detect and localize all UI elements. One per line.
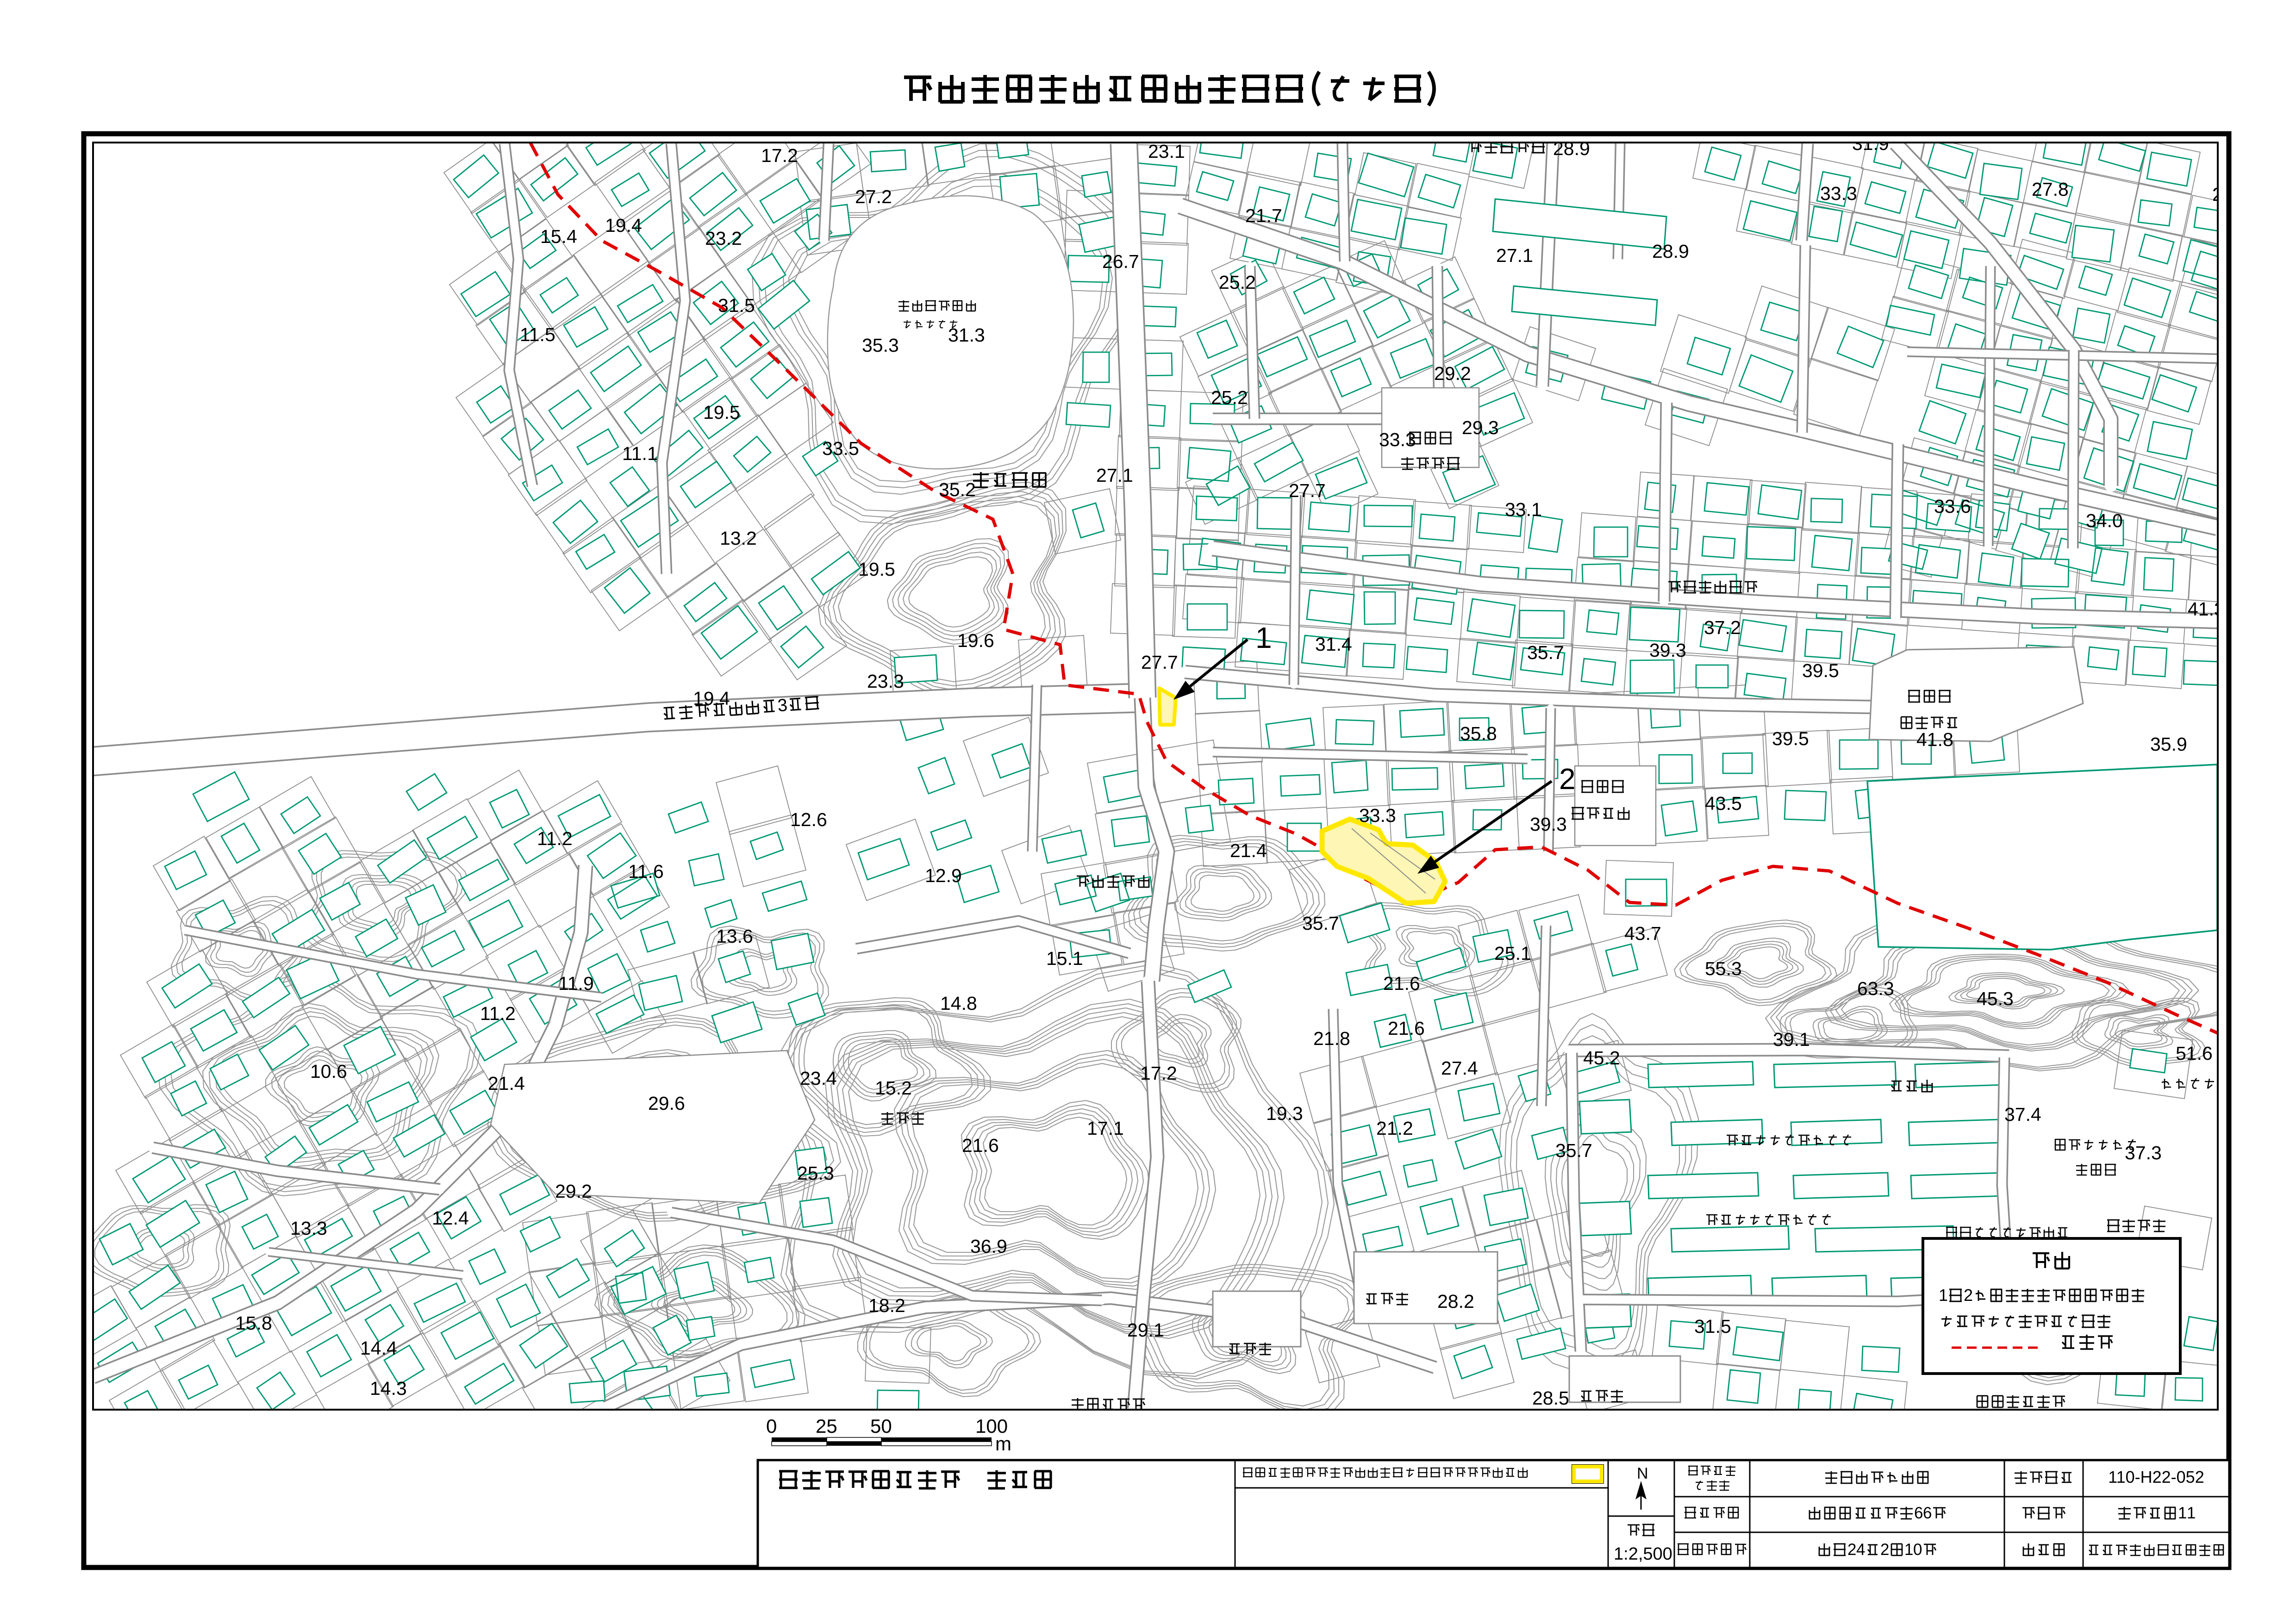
svg-text:10.6: 10.6: [310, 1061, 347, 1082]
svg-text:29.2: 29.2: [555, 1181, 592, 1202]
svg-text:29.2: 29.2: [1434, 363, 1471, 384]
svg-text:27.2: 27.2: [855, 186, 892, 207]
svg-text:15.4: 15.4: [540, 226, 577, 247]
svg-text:21.6: 21.6: [1388, 1018, 1425, 1039]
svg-text:25.1: 25.1: [1494, 943, 1531, 964]
svg-text:55.3: 55.3: [1705, 958, 1742, 979]
svg-text:34.0: 34.0: [2086, 510, 2123, 531]
svg-text:35.3: 35.3: [862, 335, 899, 356]
svg-text:33.3: 33.3: [1379, 429, 1416, 450]
svg-text:43.7: 43.7: [1624, 923, 1661, 944]
svg-text:33.6: 33.6: [1934, 496, 1971, 517]
svg-text:11.6: 11.6: [628, 861, 664, 882]
svg-text:m: m: [995, 1433, 1011, 1455]
svg-text:19.5: 19.5: [703, 402, 740, 423]
svg-text:35.8: 35.8: [1460, 723, 1497, 744]
svg-text:28.9: 28.9: [1652, 241, 1689, 262]
svg-text:21.4: 21.4: [1230, 840, 1267, 861]
svg-text:31.3: 31.3: [948, 324, 985, 346]
svg-text:39.5: 39.5: [1772, 728, 1809, 749]
svg-text:29.6: 29.6: [648, 1093, 685, 1114]
svg-text:27.7: 27.7: [1289, 480, 1326, 501]
svg-text:39.5: 39.5: [1802, 660, 1839, 681]
svg-text:14.3: 14.3: [370, 1378, 407, 1399]
svg-text:25.3: 25.3: [797, 1163, 834, 1184]
svg-text:37.3: 37.3: [2125, 1142, 2162, 1163]
svg-text:19.4: 19.4: [605, 215, 642, 236]
svg-text:11.9: 11.9: [558, 973, 594, 994]
svg-text:35.2: 35.2: [939, 479, 976, 500]
svg-text:29.3: 29.3: [1462, 417, 1499, 438]
svg-text:15.1: 15.1: [1046, 948, 1083, 969]
svg-text:23.2: 23.2: [705, 228, 742, 249]
svg-text:6: 6: [1923, 1504, 1932, 1522]
svg-text:25.2: 25.2: [1211, 387, 1248, 408]
svg-text:25: 25: [816, 1415, 837, 1437]
svg-text:45.3: 45.3: [1977, 988, 2014, 1009]
svg-text:2: 2: [1880, 1541, 1889, 1559]
svg-text:23.4: 23.4: [800, 1068, 837, 1089]
svg-text:12.9: 12.9: [925, 865, 962, 886]
svg-text:39.1: 39.1: [1773, 1029, 1810, 1050]
svg-text:21.7: 21.7: [1245, 205, 1282, 226]
svg-text:37.2: 37.2: [1704, 617, 1741, 638]
svg-text:13.2: 13.2: [720, 528, 757, 549]
svg-text:11.2: 11.2: [480, 1003, 516, 1024]
svg-text:33.5: 33.5: [822, 438, 859, 459]
svg-text:6: 6: [1914, 1504, 1923, 1522]
svg-text:2: 2: [1847, 1541, 1856, 1559]
svg-text:33.1: 33.1: [1505, 499, 1542, 520]
svg-text:11.2: 11.2: [537, 828, 573, 849]
svg-text:19.6: 19.6: [957, 630, 994, 651]
svg-text:12.6: 12.6: [790, 809, 827, 830]
svg-text:17.2: 17.2: [761, 145, 798, 166]
svg-text:11.5: 11.5: [520, 324, 555, 345]
svg-text:27.4: 27.4: [1441, 1057, 1478, 1079]
svg-text:43.5: 43.5: [1705, 793, 1742, 814]
svg-text:17.1: 17.1: [1087, 1118, 1124, 1139]
svg-text:14.4: 14.4: [360, 1337, 397, 1359]
svg-text:1: 1: [2178, 1504, 2187, 1522]
svg-text:63.3: 63.3: [1857, 978, 1894, 999]
svg-text:21.2: 21.2: [1376, 1118, 1413, 1139]
svg-text:31.4: 31.4: [1315, 634, 1352, 655]
svg-text:110-H22-052: 110-H22-052: [2108, 1468, 2204, 1486]
svg-text:13.3: 13.3: [290, 1218, 327, 1239]
svg-text:37.4: 37.4: [2004, 1104, 2041, 1125]
svg-text:33.3: 33.3: [1820, 183, 1857, 204]
svg-text:N: N: [1637, 1465, 1648, 1482]
svg-text:35.7: 35.7: [1527, 642, 1564, 663]
svg-text:27.8: 27.8: [2032, 179, 2069, 200]
svg-text:41.8: 41.8: [1916, 729, 1953, 750]
svg-text:21.6: 21.6: [962, 1135, 999, 1156]
svg-text:23.1: 23.1: [1148, 141, 1185, 162]
svg-text:1: 1: [1904, 1541, 1913, 1559]
svg-text:35.9: 35.9: [2150, 734, 2187, 755]
svg-text:1: 1: [1939, 1286, 1948, 1305]
svg-text:35.7: 35.7: [1302, 913, 1339, 934]
svg-text:19.3: 19.3: [1266, 1103, 1303, 1124]
svg-text:28.5: 28.5: [1532, 1387, 1569, 1409]
svg-text:28.2: 28.2: [1437, 1291, 1474, 1312]
svg-text:3: 3: [777, 696, 788, 715]
svg-text:36.9: 36.9: [970, 1236, 1007, 1257]
svg-text:18.2: 18.2: [868, 1295, 905, 1316]
svg-text:33.3: 33.3: [1359, 805, 1396, 826]
svg-text:19.5: 19.5: [858, 559, 895, 580]
svg-text:21.4: 21.4: [488, 1073, 525, 1094]
svg-text:0: 0: [1913, 1541, 1922, 1559]
svg-text:2: 2: [1964, 1286, 1973, 1305]
svg-text:19.4: 19.4: [693, 688, 730, 709]
svg-text:11.1: 11.1: [622, 443, 658, 464]
svg-text:50: 50: [870, 1415, 892, 1437]
svg-text:27.1: 27.1: [1496, 245, 1533, 266]
svg-text:27.1: 27.1: [1096, 465, 1133, 486]
svg-text:27.7: 27.7: [1141, 652, 1178, 673]
svg-text:17.2: 17.2: [1140, 1063, 1177, 1084]
svg-text:31.5: 31.5: [718, 295, 755, 316]
svg-text:21.8: 21.8: [1313, 1028, 1350, 1049]
svg-text:23.3: 23.3: [867, 671, 904, 692]
svg-text:35.7: 35.7: [1555, 1140, 1592, 1161]
svg-text:39.3: 39.3: [1530, 814, 1567, 835]
svg-text:15.8: 15.8: [235, 1312, 272, 1334]
svg-text:1: 1: [1255, 621, 1272, 654]
svg-text:4: 4: [1856, 1541, 1865, 1559]
svg-text:2: 2: [1559, 762, 1576, 796]
svg-text:51.6: 51.6: [2176, 1043, 2213, 1064]
svg-text:1: 1: [2187, 1504, 2196, 1522]
svg-text:15.2: 15.2: [875, 1077, 912, 1099]
svg-text:13.6: 13.6: [716, 926, 753, 947]
svg-text:0: 0: [766, 1415, 777, 1437]
svg-text:26.7: 26.7: [1102, 251, 1139, 272]
svg-text:25.2: 25.2: [1219, 272, 1256, 293]
svg-text:1:2,500: 1:2,500: [1614, 1544, 1672, 1564]
svg-text:39.3: 39.3: [1649, 640, 1686, 661]
svg-text:29.1: 29.1: [1127, 1319, 1164, 1341]
svg-text:14.8: 14.8: [940, 993, 977, 1014]
svg-text:31.5: 31.5: [1694, 1316, 1731, 1337]
svg-text:21.6: 21.6: [1383, 973, 1420, 994]
svg-text:12.4: 12.4: [432, 1207, 469, 1229]
svg-text:45.2: 45.2: [1583, 1047, 1620, 1069]
